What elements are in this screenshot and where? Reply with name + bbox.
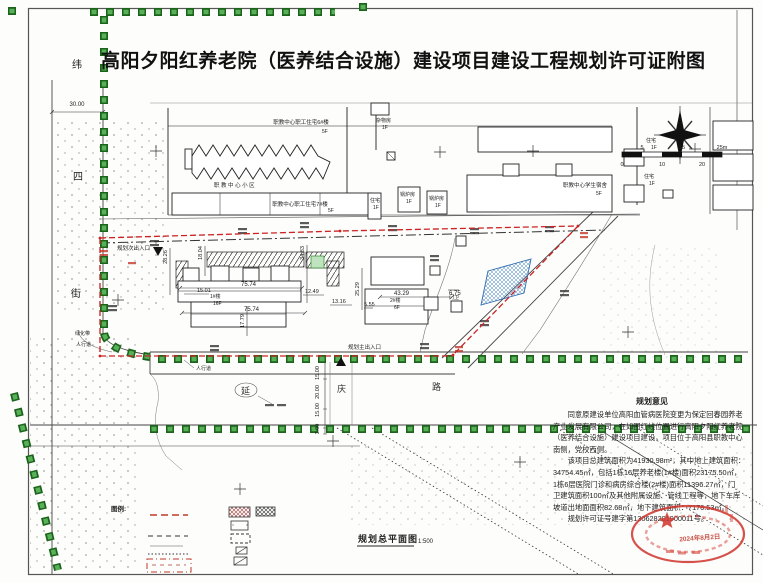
sidewalk-label-1: 人行道	[196, 365, 211, 372]
dim-road-15b: 15.00	[315, 403, 321, 417]
legend-dotted-box	[231, 521, 248, 530]
permit-drawing-sheet: 5 15 25m 0 10 20 图例: 规划总平面图 1:500 纬 四 街	[0, 0, 763, 583]
south-road-char-1: 延	[241, 385, 250, 396]
house-left-floors: 1F	[373, 205, 379, 211]
scale-label-0: 0	[620, 162, 623, 168]
dim-road-15a: 15.00	[315, 366, 321, 380]
dim-road-20: 20.00	[315, 385, 321, 399]
bldg2-label: 2#楼	[390, 297, 401, 304]
sidewalk-label-2: 人行道	[76, 341, 91, 348]
legend-hatch-red-box	[229, 507, 250, 517]
opinion-line: 34754.45㎡，包括1栋16层养老楼(1#楼)面积23175.50㎡，	[553, 467, 751, 479]
legend-hatch-black-box	[256, 507, 275, 516]
west-street-char-3: 街	[71, 287, 81, 300]
dim-15-01: 15.01	[197, 288, 211, 294]
planning-opinion-block: 规划意见 同意原建设单位高阳血管病医院变更为保定回春园养老 产业发展有限公司，在…	[553, 396, 751, 525]
house-right2-floors: 1F	[649, 181, 655, 187]
opinion-line: 南侧，党校西侧。	[553, 444, 751, 456]
opinion-line: 该项目总建筑面积为41930.98m²，其中地上建筑面积：	[553, 455, 751, 467]
drawing-scale: 1:500	[418, 539, 434, 545]
planning-opinion-heading: 规划意见	[553, 396, 751, 407]
legend-title: 图例:	[111, 504, 126, 513]
bldg1-label: 1#楼	[210, 293, 221, 300]
coordinate-smudges	[108, 222, 569, 406]
sheet-title: 高阳夕阳红养老院（医养结合设施）建设项目建设工程规划许可证附图	[101, 46, 667, 73]
dim-75-74-a: 75.74	[241, 282, 257, 288]
dim-34-83: 34.83	[300, 246, 306, 260]
blue-hatched-ramp-area	[481, 259, 531, 305]
opinion-line: 同意原建设单位高阳血管病医院变更为保定回春园养老	[553, 409, 751, 421]
drawing-title-block: 规划总平面图 1:500	[357, 533, 434, 546]
scale-label-20: 20	[699, 162, 705, 168]
dim-6-75: 6.75	[449, 291, 461, 297]
house-right1-floors: 1F	[651, 145, 657, 151]
dorm7-label: 职教中心职工住宅7#楼	[272, 200, 328, 208]
dim-17-79: 17.79	[240, 314, 246, 328]
dim-43-29: 43.29	[394, 291, 410, 297]
boiler1-floors: 1F	[406, 199, 412, 205]
bldg1-floors: 16F	[213, 301, 222, 307]
drawing-title: 规划总平面图	[358, 533, 418, 544]
misc-room-label: 杂物房	[376, 117, 391, 124]
student-dorm-floors: 5F	[596, 191, 602, 197]
greenbelt-label: 绿化带	[75, 330, 90, 337]
misc-room-floors: 1F	[382, 125, 388, 131]
legend-boundary-box	[147, 559, 191, 572]
student-dorm-label: 职教中心学生宿舍	[563, 181, 608, 189]
dim-28-26: 28.26	[163, 250, 169, 264]
dim-13-16: 13.16	[332, 299, 346, 305]
opinion-line: 产业发展有限公司，在如图红线位置进行高阳夕阳红养老院	[553, 421, 751, 433]
scale-label-25m: 25m	[717, 145, 728, 151]
dim-road-3: 3.00	[315, 424, 321, 435]
south-road-char-2: 庆	[337, 383, 346, 394]
dim-25-29: 25.29	[355, 282, 361, 296]
house-right2-label: 住宅	[644, 173, 654, 180]
dim-street-width: 30.00	[69, 102, 85, 108]
boiler2-floors: 1F	[435, 203, 441, 209]
scale-label-15: 15	[679, 145, 685, 151]
boiler1-label: 锅炉房	[400, 191, 415, 198]
main-entrance-label: 规划主出入口	[348, 343, 381, 351]
opinion-line: （医养结合设施）建设项目建设，项目位于高阳县职教中心	[553, 432, 751, 444]
dim-5-55: 5.55	[364, 302, 375, 308]
campus-zone-label: 职 教 中 心 小 区	[214, 181, 255, 189]
dim-18-04: 18.04	[198, 246, 204, 260]
west-street-char-1: 纬	[72, 58, 82, 71]
legend-dashed-box	[231, 534, 250, 543]
side-entrance-label: 规划次出入口	[117, 244, 150, 252]
west-street-char-2: 四	[73, 172, 83, 183]
scale-label-10: 10	[659, 162, 665, 168]
dim-12-49: 12.49	[305, 289, 319, 295]
opinion-line: 坡道出地面面积82.68㎡，地下建筑面积：7176.53㎡。	[553, 502, 751, 514]
bldg2-floors: 6F	[394, 305, 400, 311]
dorm6-label: 职教中心职工住宅6#楼	[273, 118, 329, 126]
site-buildings	[176, 236, 531, 327]
dorm7-floors: 5F	[328, 208, 334, 214]
south-road-char-3: 路	[432, 381, 441, 392]
neighbour-buildings	[168, 103, 753, 219]
dorm6-floors: 5F	[322, 129, 328, 135]
boiler2-label: 锅炉房	[429, 195, 444, 202]
house-left-label: 住宅	[370, 197, 380, 204]
opinion-line: 规划许可证号建字第130628201900011号。	[553, 513, 751, 525]
opinion-line: 卫建筑面积100㎡及其他附属设施、管线工程等，地下车库	[553, 490, 751, 502]
house-right1-label: 住宅	[646, 137, 656, 144]
opinion-line: 1栋6层医院门诊和病房综合楼(2#楼)面积11396.27㎡，门	[553, 479, 751, 491]
scale-label-5: 5	[640, 145, 643, 151]
dim-75-74-b: 75.74	[244, 307, 260, 313]
